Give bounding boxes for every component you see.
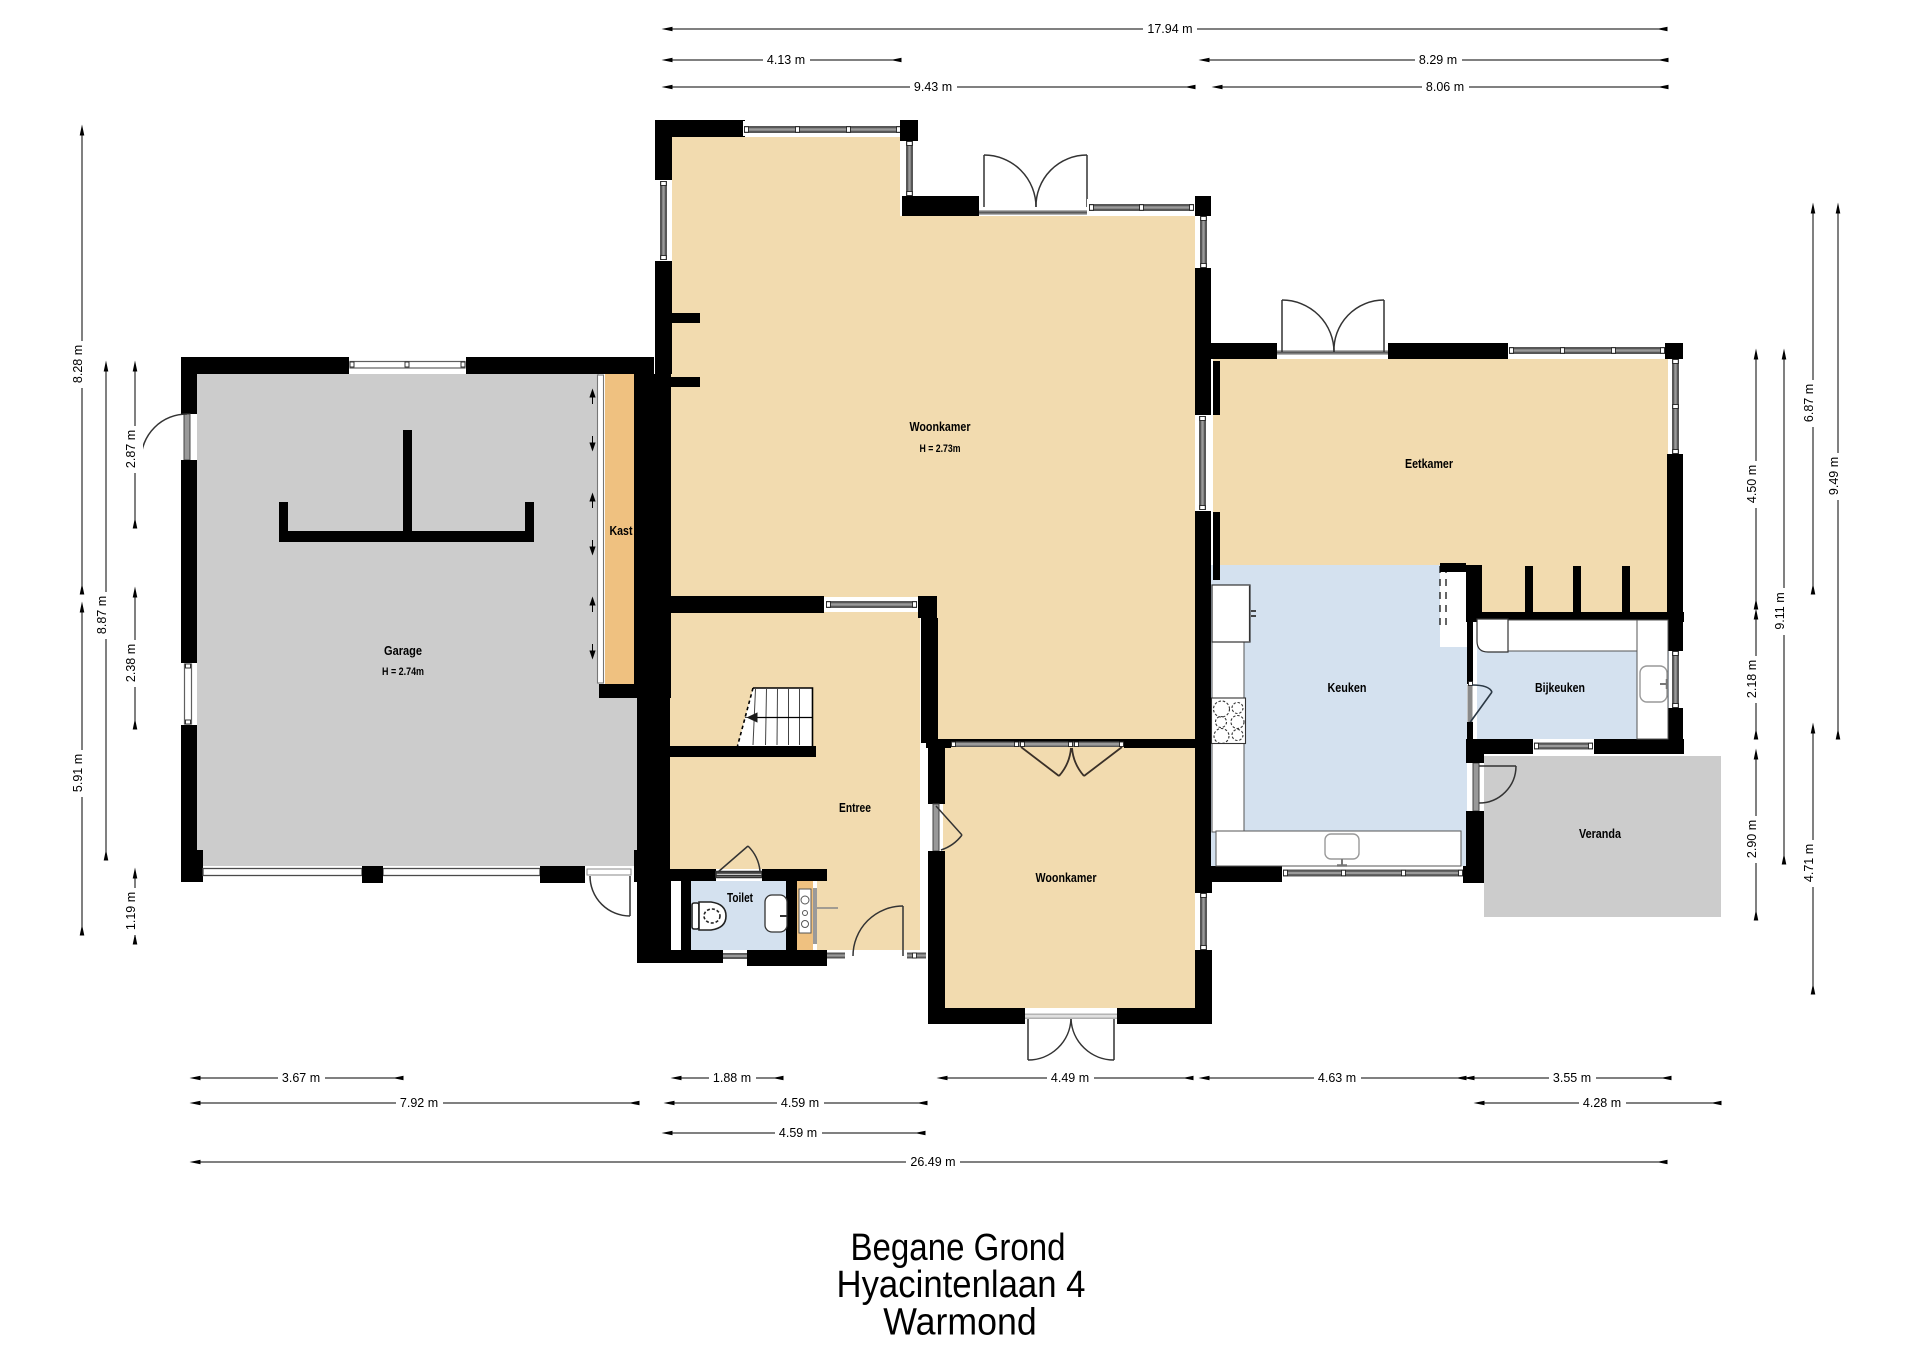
- svg-text:Woonkamer: Woonkamer: [910, 419, 971, 434]
- svg-text:4.59 m: 4.59 m: [781, 1096, 819, 1110]
- svg-text:Kast: Kast: [610, 523, 634, 538]
- svg-text:Warmond: Warmond: [883, 1300, 1036, 1342]
- svg-text:9.43 m: 9.43 m: [914, 80, 952, 94]
- svg-text:3.55 m: 3.55 m: [1553, 1071, 1591, 1085]
- svg-text:4.63 m: 4.63 m: [1318, 1071, 1356, 1085]
- svg-text:Veranda: Veranda: [1579, 826, 1622, 841]
- svg-text:2.18 m: 2.18 m: [1745, 660, 1759, 698]
- svg-text:4.28 m: 4.28 m: [1583, 1096, 1621, 1110]
- svg-text:9.49 m: 9.49 m: [1827, 457, 1841, 495]
- svg-text:1.19 m: 1.19 m: [124, 892, 138, 930]
- svg-text:Garage: Garage: [384, 643, 422, 658]
- svg-text:Keuken: Keuken: [1328, 680, 1367, 695]
- svg-text:2.90 m: 2.90 m: [1745, 820, 1759, 858]
- svg-text:4.71 m: 4.71 m: [1802, 844, 1816, 882]
- svg-text:7.92 m: 7.92 m: [400, 1096, 438, 1110]
- svg-text:4.49 m: 4.49 m: [1051, 1071, 1089, 1085]
- svg-text:4.59 m: 4.59 m: [779, 1126, 817, 1140]
- svg-text:Bijkeuken: Bijkeuken: [1535, 680, 1585, 695]
- svg-text:3.67 m: 3.67 m: [282, 1071, 320, 1085]
- svg-text:5.91 m: 5.91 m: [71, 754, 85, 792]
- svg-text:1.88 m: 1.88 m: [713, 1071, 751, 1085]
- svg-text:2.38 m: 2.38 m: [124, 644, 138, 682]
- svg-text:2.87 m: 2.87 m: [124, 430, 138, 468]
- svg-text:8.06 m: 8.06 m: [1426, 80, 1464, 94]
- svg-text:Eetkamer: Eetkamer: [1405, 456, 1453, 471]
- svg-text:Woonkamer: Woonkamer: [1036, 870, 1097, 885]
- svg-text:8.28 m: 8.28 m: [71, 345, 85, 383]
- svg-text:Begane Grond: Begane Grond: [851, 1227, 1066, 1269]
- svg-text:9.11 m: 9.11 m: [1773, 592, 1787, 629]
- svg-text:H = 2.73m: H = 2.73m: [920, 443, 961, 455]
- svg-text:26.49 m: 26.49 m: [910, 1155, 955, 1169]
- svg-text:Entree: Entree: [839, 800, 871, 815]
- svg-text:4.50 m: 4.50 m: [1745, 465, 1759, 503]
- svg-text:Toilet: Toilet: [727, 890, 754, 905]
- svg-text:8.87 m: 8.87 m: [95, 596, 109, 634]
- svg-text:6.87 m: 6.87 m: [1802, 384, 1816, 422]
- svg-text:8.29 m: 8.29 m: [1419, 53, 1457, 67]
- svg-text:4.13 m: 4.13 m: [767, 53, 805, 67]
- svg-text:H = 2.74m: H = 2.74m: [382, 666, 424, 678]
- svg-text:17.94 m: 17.94 m: [1147, 22, 1192, 36]
